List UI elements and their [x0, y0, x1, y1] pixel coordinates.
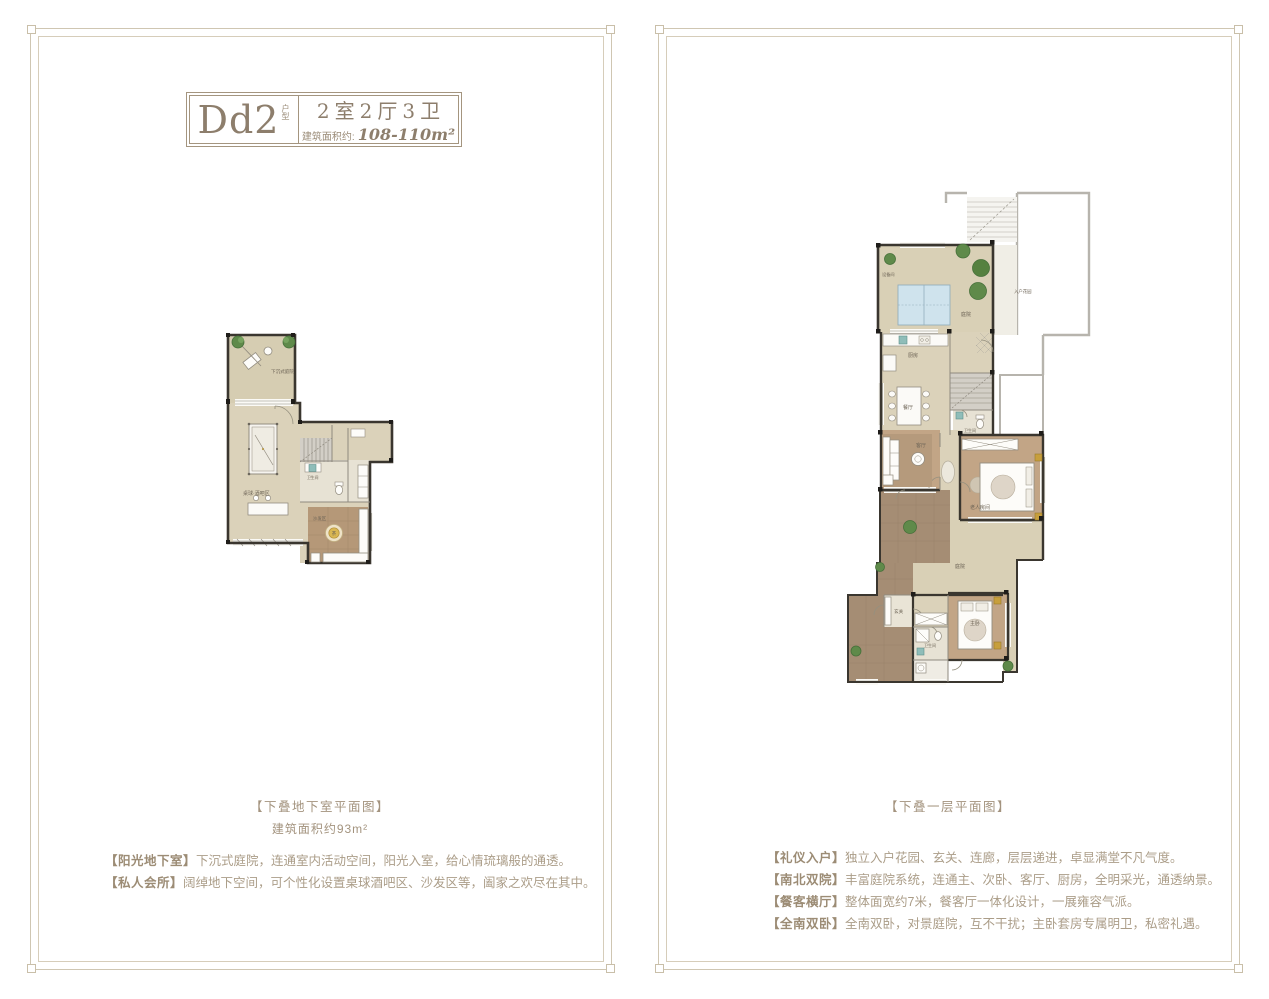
feature-text: 全南双卧，对景庭院，互不干扰；主卧套房专属明卫，私密礼遇。	[845, 917, 1208, 931]
frame-ornament	[655, 25, 664, 34]
unit-model: Dd2	[198, 101, 280, 139]
feature-text: 丰富庭院系统，连通主、次卧、客厅、厨房，全明采光，通透纳景。	[845, 873, 1220, 887]
feature-text: 整体面宽约7米，餐客厅一体化设计，一展雍容气派。	[845, 895, 1139, 909]
room-label-elder: 老人房间	[970, 504, 990, 511]
unit-rooms-spec: 2室2厅3卫	[317, 95, 445, 124]
room-label-billiards: 桌球·酒吧区	[243, 490, 270, 497]
left-feature-list: 【阳光地下室】下沉式庭院，连通室内活动空间，阳光入室，给心情琉璃般的通透。 【私…	[105, 850, 596, 894]
feature-title: 【阳光地下室】	[105, 854, 196, 868]
feature-title: 【南北双院】	[767, 873, 845, 887]
tea-table-glyph: 茶	[332, 530, 337, 536]
feature-line: 【餐客横厅】整体面宽约7米，餐客厅一体化设计，一展雍容气派。	[767, 891, 1220, 913]
room-label-bath1: 卫生间	[964, 427, 976, 433]
frame-ornament	[27, 964, 36, 973]
unit-model-tag: 户型	[281, 105, 290, 121]
room-label-master: 主卧	[970, 620, 980, 627]
frame-ornament	[1234, 25, 1243, 34]
frame-ornament	[655, 964, 664, 973]
feature-text: 阔绰地下空间，可个性化设置桌球酒吧区、沙发区等，阖家之欢尽在其中。	[183, 876, 596, 890]
room-label-entry-garden: 入户花园	[1014, 288, 1032, 295]
unit-model-cell: Dd2 户型	[190, 96, 298, 143]
feature-title: 【全南双卧】	[767, 917, 845, 931]
room-label-sofa: 沙发区	[313, 515, 327, 522]
feature-text: 独立入户花园、玄关、连廊，层层递进，卓显满堂不凡气度。	[845, 851, 1183, 865]
room-label-living: 客厅	[916, 442, 926, 449]
unit-area-label: 建筑面积约:	[302, 128, 355, 143]
basement-floorplan: 下沉式庭院 桌球·酒吧区 卫生间 沙发区 茶	[215, 325, 405, 575]
unit-spec-cell: 2室2厅3卫 建筑面积约: 108-110m²	[298, 96, 458, 143]
frame-ornament	[1234, 964, 1243, 973]
room-label-foyer: 玄关	[894, 608, 904, 615]
room-label-north-yard: 庭院	[961, 311, 971, 318]
room-label-bath: 卫生间	[307, 475, 319, 480]
room-label-equipment: 设备间	[882, 271, 895, 278]
unit-area-value: 108-110m²	[358, 125, 455, 144]
first-floor-caption: 【下叠一层平面图】	[658, 796, 1238, 815]
basement-area: 建筑面积约93m²	[30, 820, 610, 837]
frame-ornament	[606, 964, 615, 973]
feature-line: 【礼仪入户】独立入户花园、玄关、连廊，层层递进，卓显满堂不凡气度。	[767, 847, 1220, 869]
unit-header-box: Dd2 户型 2室2厅3卫 建筑面积约: 108-110m²	[186, 92, 462, 147]
room-label-south-yard: 庭院	[955, 563, 965, 570]
first-floor-floorplan: 设备间 庭院 入户花园 厨房 餐厅 客厅 卫生间 老人房间 庭院 玄关 主卧 卫…	[820, 185, 1115, 705]
frame-ornament	[27, 25, 36, 34]
room-label-courtyard: 下沉式庭院	[271, 368, 294, 375]
basement-caption: 【下叠地下室平面图】	[30, 796, 610, 815]
room-label-dining: 餐厅	[903, 404, 913, 411]
feature-title: 【私人会所】	[105, 876, 183, 890]
feature-line: 【南北双院】丰富庭院系统，连通主、次卧、客厅、厨房，全明采光，通透纳景。	[767, 869, 1220, 891]
feature-line: 【私人会所】阔绰地下空间，可个性化设置桌球酒吧区、沙发区等，阖家之欢尽在其中。	[105, 872, 596, 894]
feature-line: 【全南双卧】全南双卧，对景庭院，互不干扰；主卧套房专属明卫，私密礼遇。	[767, 913, 1220, 935]
feature-title: 【礼仪入户】	[767, 851, 845, 865]
room-label-kitchen: 厨房	[908, 352, 918, 359]
brochure-sheet: Dd2 户型 2室2厅3卫 建筑面积约: 108-110m²	[0, 0, 1269, 999]
feature-title: 【餐客横厅】	[767, 895, 845, 909]
right-feature-list: 【礼仪入户】独立入户花园、玄关、连廊，层层递进，卓显满堂不凡气度。 【南北双院】…	[767, 847, 1220, 935]
room-label-bath2: 卫生间	[924, 642, 936, 648]
feature-line: 【阳光地下室】下沉式庭院，连通室内活动空间，阳光入室，给心情琉璃般的通透。	[105, 850, 596, 872]
frame-ornament	[606, 25, 615, 34]
feature-text: 下沉式庭院，连通室内活动空间，阳光入室，给心情琉璃般的通透。	[196, 854, 571, 868]
